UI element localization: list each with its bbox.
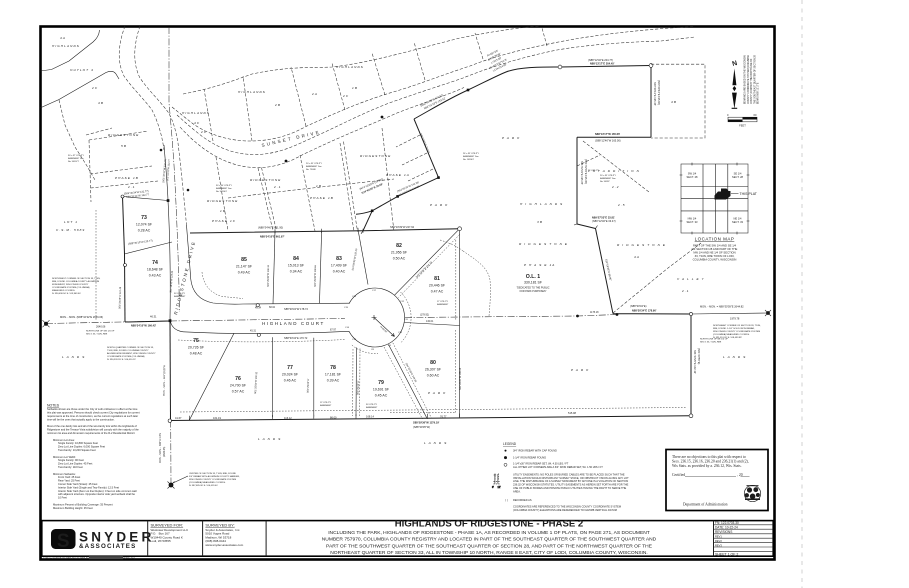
- svg-text:132.01: 132.01: [426, 320, 434, 323]
- svg-text:0.46 AC: 0.46 AC: [284, 379, 297, 383]
- svg-text:(178.92): (178.92): [420, 313, 429, 316]
- svg-text:20' x 35' UTILITY: 20' x 35' UTILITY: [306, 163, 323, 165]
- svg-text:EASEMENT: EASEMENT: [366, 406, 378, 409]
- svg-text:24,700 SF: 24,700 SF: [230, 384, 246, 388]
- svg-text:20' x 35' UTILITY: 20' x 35' UTILITY: [600, 175, 617, 177]
- svg-text:DATE: 10-22-24: DATE: 10-22-24: [715, 525, 738, 529]
- svg-text:87.97: 87.97: [330, 329, 337, 332]
- svg-text:PHASE 1B: PHASE 1B: [115, 176, 139, 180]
- svg-text:0.60 AC: 0.60 AC: [427, 374, 440, 378]
- svg-text:P H A S E 1A: P H A S E 1A: [524, 263, 555, 267]
- svg-text:INSTALLATION WOULD DISTURB ANY: INSTALLATION WOULD DISTURB ANY SURVEY ST…: [513, 476, 629, 480]
- svg-text:(N88°12'46"E 204.77): (N88°12'46"E 204.77): [588, 58, 613, 62]
- svg-text:EASEMENT Doc.: EASEMENT Doc.: [600, 177, 617, 180]
- svg-text:HIGHLANDS: HIGHLANDS: [238, 90, 266, 94]
- svg-text:SURVEYED BY:: SURVEYED BY:: [205, 522, 234, 527]
- svg-text:REV2: REV2: [715, 539, 722, 543]
- svg-text:CENTER OF SECTION 33, T10N, R8: CENTER OF SECTION 33, T10N, R8E, FOUND: [189, 473, 236, 475]
- svg-text:0.45 AC: 0.45 AC: [375, 394, 388, 398]
- svg-text:BEARINGS ARE BASED ON THE WISC: BEARINGS ARE BASED ON THE WISCONSIN: [744, 55, 747, 104]
- svg-text:330,181 SF: 330,181 SF: [524, 281, 542, 285]
- svg-text:2.1: 2.1: [681, 289, 690, 293]
- svg-text:REV3: REV3: [715, 543, 722, 547]
- svg-text:FOR PARK PURPOSES": FOR PARK PURPOSES": [520, 290, 547, 293]
- svg-text:SE 1/4: SE 1/4: [734, 171, 742, 175]
- svg-text:33, T10N, R8E TOWN OF LOD: 33, T10N, R8E TOWN OF LODI,: [695, 254, 735, 258]
- svg-text:116.12: 116.12: [284, 416, 292, 420]
- svg-text:(S88°12'46"W 165.00): (S88°12'46"W 165.00): [595, 139, 621, 143]
- svg-text:HIGHLAND COURT: HIGHLAND COURT: [262, 321, 325, 326]
- svg-text:Two-Family: 13,200 Square Feet: Two-Family: 13,200 Square Feet: [58, 448, 96, 452]
- svg-text:Most of the one-family lots an: Most of the one-family lots and all of t…: [47, 424, 137, 428]
- svg-text:(COLUMBIA COUNTY) ELEVATIONS A: (COLUMBIA COUNTY) ELEVATIONS ARE REFEREN…: [513, 508, 617, 512]
- svg-text:PHASE 1B: PHASE 1B: [310, 196, 334, 200]
- svg-text:45.31: 45.31: [250, 330, 257, 333]
- svg-text:SECT. 33: SECT. 33: [732, 220, 744, 224]
- svg-text:79: 79: [378, 380, 384, 386]
- svg-text:MON. - MON. - N00°11'13"E: MON. - MON. - N00°11'13"E: [159, 432, 162, 463]
- svg-text:NW 1/4 AND NE 1/4 OF SEC: NW 1/4 AND NE 1/4 OF SECTION: [693, 251, 735, 255]
- svg-text:COORDINATE SYSTEM (COLUMBIA): COORDINATE SYSTEM (COLUMBIA): [52, 286, 90, 289]
- svg-text:SECT. 33, T10N, R8E: SECT. 33, T10N, R8E: [700, 342, 722, 344]
- svg-text:C.S.M. 5889: C.S.M. 5889: [56, 228, 85, 232]
- svg-text:15,013 SF: 15,013 SF: [288, 264, 304, 268]
- svg-text:80: 80: [430, 360, 436, 366]
- svg-text:0.40 AC: 0.40 AC: [333, 270, 346, 274]
- svg-text:(N88°34'40"E 661.90): (N88°34'40"E 661.90): [258, 226, 283, 230]
- svg-text:www.snyder-associates.com: www.snyder-associates.com: [205, 543, 243, 547]
- svg-text:Minimum Lot Width:: Minimum Lot Width:: [53, 455, 76, 459]
- svg-text:H I G H L A N D S: H I G H L A N D S: [520, 202, 563, 206]
- svg-text:30' x 37' UTILITY: 30' x 37' UTILITY: [68, 155, 85, 157]
- svg-text:17' UTILITY: 17' UTILITY: [437, 301, 449, 303]
- svg-text:83: 83: [336, 256, 342, 262]
- svg-text:4B: 4B: [98, 101, 104, 105]
- svg-text:P A R K: P A R K: [428, 391, 446, 395]
- svg-text:L A N D S: L A N D S: [723, 355, 746, 359]
- svg-text:NUMBER 757970, COLUMBIA COUNTY: NUMBER 757970, COLUMBIA COUNTY REGISTRY …: [322, 537, 657, 543]
- svg-text:with adjacent structure. Oppos: with adjacent structure. Opposite interi…: [58, 492, 136, 496]
- svg-text:S01°29'26"W: S01°29'26"W: [306, 378, 310, 393]
- svg-text:0.47 AC: 0.47 AC: [431, 290, 444, 294]
- svg-text:Minimum Lot Area:: Minimum Lot Area:: [53, 438, 75, 442]
- svg-text:161.19: 161.19: [213, 416, 221, 420]
- svg-text:R I D G E S T O N E: R I D G E S T O N E: [519, 242, 568, 246]
- svg-text:Single Family: 10,800 Square F: Single Family: 10,800 Square Feet: [58, 441, 98, 445]
- svg-text:0.43 AC: 0.43 AC: [149, 274, 162, 278]
- svg-text:1B: 1B: [352, 86, 358, 90]
- svg-text:S88°39'36"W 1179.19': S88°39'36"W 1179.19': [413, 421, 440, 425]
- svg-text:EASEMENT: EASEMENT: [174, 295, 186, 298]
- svg-text:COORDINATES ARE REFERENCED TO: COORDINATES ARE REFERENCED TO THE WISCON…: [513, 505, 621, 509]
- svg-text:78: 78: [330, 365, 336, 371]
- svg-text:O.L. 1: O.L. 1: [526, 274, 541, 280]
- svg-text:No. 102067: No. 102067: [463, 159, 475, 161]
- svg-text:Rear Yard: 25 Feet: Rear Yard: 25 Feet: [58, 479, 80, 483]
- svg-text:2.5: 2.5: [617, 203, 626, 207]
- svg-text:1B: 1B: [220, 209, 226, 213]
- svg-text:HIGHLANDS: HIGHLANDS: [182, 111, 210, 115]
- svg-text:73: 73: [141, 215, 147, 221]
- svg-text:&ASSOCIATES: &ASSOCIATES: [79, 543, 136, 550]
- svg-text:SW 1/4: SW 1/4: [688, 171, 697, 175]
- svg-text:26' x 35' UTILITY: 26' x 35' UTILITY: [463, 153, 480, 155]
- svg-text:AREA.: AREA.: [513, 489, 521, 493]
- svg-text:this plat was approved. Person: this plat was approved. Persons should c…: [47, 411, 140, 415]
- svg-text:(COLUMBIA) MEASURED COORDS.: (COLUMBIA) MEASURED COORDS.: [189, 481, 226, 484]
- svg-text:Maximum Building Height: 45 Fe: Maximum Building Height: 45 Feet: [53, 506, 93, 510]
- svg-text:N: 390,326.55' E: 516,610.13': N: 390,326.55' E: 516,610.13': [107, 359, 136, 361]
- svg-text:( ): ( ): [505, 498, 508, 502]
- svg-text:74: 74: [152, 260, 158, 266]
- svg-text:NORTH LINE OF SW 1/4 OF: NORTH LINE OF SW 1/4 OF: [86, 331, 115, 333]
- svg-text:S01°02'33"E 195.05': S01°02'33"E 195.05': [580, 161, 584, 185]
- svg-text:COUNTY) IN WHICH THE NORTH LIN: COUNTY) IN WHICH THE NORTH LINE OF: [751, 58, 753, 104]
- svg-text:Setbacks shown are those under: Setbacks shown are those under the City …: [47, 407, 138, 411]
- svg-text:2640.06: 2640.06: [96, 325, 106, 329]
- svg-text:1979.78: 1979.78: [730, 317, 740, 321]
- svg-text:LOCATION MAP: LOCATION MAP: [695, 237, 735, 242]
- svg-text:2.1: 2.1: [127, 185, 136, 189]
- svg-text:Certified: Certified: [672, 473, 685, 477]
- svg-text:Ridgestone and the Terrace Vis: Ridgestone and the Terrace Vista subdivi…: [47, 428, 139, 432]
- svg-text:EASEMENT Doc.: EASEMENT Doc.: [68, 157, 85, 160]
- svg-text:SHEET 1 OF 2: SHEET 1 OF 2: [715, 552, 738, 556]
- svg-text:S: S: [57, 531, 70, 552]
- svg-text:EASEMENT Doc.: EASEMENT Doc.: [306, 165, 323, 168]
- svg-text:THE SOUTHEAST QUARTER OF SECTI: THE SOUTHEAST QUARTER OF SECTION 28: [753, 54, 756, 104]
- svg-text:PART OF THE SW 1/4 AND S: PART OF THE SW 1/4 AND SE 1/4: [693, 244, 737, 248]
- svg-text:NORTHEAST CORNER OF SECTION 33: NORTHEAST CORNER OF SECTION 33, T10N,: [713, 324, 761, 327]
- svg-text:HIGHLANDS: HIGHLANDS: [52, 44, 80, 48]
- svg-text:USE OF PUBLIC BODIES AND PRIVA: USE OF PUBLIC BODIES AND PRIVATE PUBLIC …: [513, 486, 627, 490]
- svg-text:MON. - MON. - S01°25'28"W: MON. - MON. - S01°25'28"W: [163, 364, 167, 396]
- svg-text:S88°30'34"W 178.72: S88°30'34"W 178.72: [284, 307, 308, 311]
- svg-text:(2640.05): (2640.05): [163, 447, 166, 457]
- svg-text:WISCONSIN COUNTY COORDINATE SY: WISCONSIN COUNTY COORDINATE SYSTEM: [713, 330, 760, 333]
- svg-text:4C: 4C: [194, 121, 200, 125]
- svg-text:0.50 AC: 0.50 AC: [393, 257, 406, 261]
- svg-text:Corner Side Yard (Street): 25: Corner Side Yard (Street): 25 Feet: [58, 482, 98, 486]
- svg-text:(S00°29'43"E 195.60): (S00°29'43"E 195.60): [657, 80, 661, 105]
- svg-text:5B: 5B: [121, 144, 127, 148]
- svg-text:R I D G E S T O N E: R I D G E S T O N E: [617, 243, 666, 247]
- svg-text:4A: 4A: [60, 36, 66, 40]
- svg-text:S01°29'26"W: S01°29'26"W: [356, 380, 360, 395]
- svg-text:N88°13'17"E 204.45': N88°13'17"E 204.45': [590, 62, 615, 66]
- svg-text:12': 12': [498, 486, 502, 489]
- svg-text:Lodi, WI 53555: Lodi, WI 53555: [151, 539, 172, 543]
- svg-text:(S01°20'55"E): (S01°20'55"E): [697, 348, 701, 364]
- svg-text:PHASE 1A: PHASE 1A: [386, 173, 410, 177]
- svg-text:Single Family: 90 Feet: Single Family: 90 Feet: [58, 458, 84, 462]
- svg-text:N88°34'10"W 166.42': N88°34'10"W 166.42': [131, 323, 157, 327]
- svg-text:P A R K: P A R K: [502, 136, 520, 140]
- svg-text:2B: 2B: [274, 103, 281, 107]
- svg-text:1-1/4"x30" IRON REBAR SET, Wt: 1-1/4"x30" IRON REBAR SET, Wt. 4.30 LBS …: [513, 462, 569, 466]
- svg-text:PART OF THE SOUTHWEST QUARTER: PART OF THE SOUTHWEST QUARTER OF THE SOU…: [326, 543, 653, 549]
- svg-text:minimum lot area and dimension: minimum lot area and dimension requireme…: [47, 431, 135, 435]
- svg-text:86.00: 86.00: [330, 415, 337, 419]
- svg-text:2C: 2C: [200, 130, 207, 134]
- svg-text:17,181 SF: 17,181 SF: [325, 373, 341, 377]
- svg-text:HIGHLANDS OF RIDGESTONE - PHAS: HIGHLANDS OF RIDGESTONE - PHASE 2: [395, 519, 584, 530]
- svg-text:30' x 30' UTILITY: 30' x 30' UTILITY: [216, 185, 233, 187]
- svg-text:168.14: 168.14: [366, 415, 374, 419]
- svg-text:76.77: 76.77: [440, 415, 447, 419]
- svg-text:R8E, FOUND COLUMBIA COUNTY ALU: R8E, FOUND COLUMBIA COUNTY ALUMINUM: [52, 280, 99, 283]
- svg-text:Front Yard: 25 Feet: Front Yard: 25 Feet: [58, 475, 81, 479]
- svg-text:Two-Family: 110 Feet: Two-Family: 110 Feet: [58, 465, 83, 469]
- svg-text:EASEMENT: EASEMENT: [437, 303, 449, 306]
- svg-text:NE 1/4: NE 1/4: [734, 216, 742, 220]
- svg-text:No. 902067: No. 902067: [216, 191, 228, 193]
- svg-text:77: 77: [287, 365, 293, 371]
- svg-text:MONUMENT, WISCONSIN COUNTY: MONUMENT, WISCONSIN COUNTY: [52, 284, 89, 286]
- svg-text:T10N, R8E, FOUND COLUMBIA COUN: T10N, R8E, FOUND COLUMBIA COUNTY: [107, 349, 149, 352]
- svg-text:3/4" IRON REBAR WITH CAP FOUND: 3/4" IRON REBAR WITH CAP FOUND: [513, 449, 557, 453]
- svg-text:REVISIONS: REVISIONS: [715, 530, 732, 534]
- svg-text:Zero Lot Line Duplex: 6,000 Sq: Zero Lot Line Duplex: 6,000 Square Feet: [58, 445, 105, 449]
- svg-text:RECORDED AS: RECORDED AS: [513, 498, 532, 502]
- svg-text:19,691 SF: 19,691 SF: [373, 388, 389, 392]
- svg-text:V A L L E Y: V A L L E Y: [677, 277, 705, 281]
- svg-text:SECT. 33: SECT. 33: [687, 220, 699, 224]
- svg-text:UTILITY EASEMENTS: NO POLES OR: UTILITY EASEMENTS: NO POLES OR BURIED CA…: [513, 472, 625, 476]
- svg-text:(N89°12'46"E 33.47): (N89°12'46"E 33.47): [592, 219, 616, 223]
- svg-text:RIDGESTONE: RIDGESTONE: [108, 133, 139, 137]
- svg-text:L A N D S: L A N D S: [258, 437, 281, 441]
- svg-text:LINE. THE DISTURBANCE OF A SUR: LINE. THE DISTURBANCE OF A SURVEY MONUME…: [513, 479, 628, 483]
- svg-text:3B: 3B: [537, 220, 543, 224]
- svg-text:WISCONSIN COUNTY COORDINATE SY: WISCONSIN COUNTY COORDINATE SYSTEM: [189, 478, 236, 481]
- svg-text:FN: 122.0703.30: FN: 122.0703.30: [715, 521, 739, 525]
- svg-text:20,024 SF: 20,024 SF: [282, 373, 298, 377]
- svg-text:Maximum Percent of Building Co: Maximum Percent of Building Coverage: 35…: [53, 502, 113, 506]
- svg-text:P A R K: P A R K: [571, 368, 589, 372]
- svg-text:(N88°30'04"E): (N88°30'04"E): [630, 304, 647, 308]
- svg-text:3/4" REBAR WITH ALUMINUM COUNT: 3/4" REBAR WITH ALUMINUM COUNTY MARKER,: [189, 475, 240, 478]
- svg-text:81: 81: [434, 276, 440, 282]
- svg-text:requirements at the time of co: requirements at the time of construction…: [47, 414, 138, 418]
- svg-text:(COLUMBIA) MEASURED COORDS.: (COLUMBIA) MEASURED COORDS.: [713, 333, 750, 336]
- svg-text:NORTHWEST CORNER OF SECTION 33: NORTHWEST CORNER OF SECTION 33, T10N,: [52, 278, 101, 280]
- svg-text:ALUMINUM MONUMENT, WISCONSIN C: ALUMINUM MONUMENT, WISCONSIN COUNTY: [107, 352, 156, 355]
- svg-text:20,726 SF: 20,726 SF: [188, 346, 204, 350]
- svg-text:2.1: 2.1: [273, 185, 282, 189]
- svg-text:time will be the ones that act: time will be the ones that actually appl…: [47, 417, 115, 421]
- svg-text:P A R K: P A R K: [430, 203, 448, 207]
- svg-text:Interior Side Yard (Single and: Interior Side Yard (Single and Two-Famil…: [58, 485, 119, 489]
- svg-text:10 Feet: 10 Feet: [58, 496, 67, 500]
- svg-text:OUTLOT 4: OUTLOT 4: [70, 68, 94, 72]
- svg-text:L A N D S: L A N D S: [62, 355, 85, 359]
- svg-text:RIDGESTONE: RIDGESTONE: [360, 154, 391, 158]
- svg-text:R8E, FOUND 1-1/4" SOLID IRON R: R8E, FOUND 1-1/4" SOLID IRON REBAR,: [713, 327, 755, 330]
- svg-text:No. 90287: No. 90287: [600, 181, 610, 183]
- svg-text:20,446 SF: 20,446 SF: [429, 284, 445, 288]
- svg-text:RIDGESTONE: RIDGESTONE: [207, 199, 238, 203]
- svg-text:46.31: 46.31: [150, 315, 157, 319]
- svg-text:RIDGESTONE: RIDGESTONE: [250, 178, 281, 182]
- svg-text:2.2: 2.2: [611, 185, 620, 189]
- svg-text:EASEMENT Doc.: EASEMENT Doc.: [463, 155, 480, 158]
- svg-text:30' UTILITY: 30' UTILITY: [174, 293, 186, 295]
- svg-text:21,147 SF: 21,147 SF: [236, 265, 252, 269]
- svg-text:4B: 4B: [671, 100, 677, 104]
- svg-text:NORTH QUARTER CORNER OF SECTIO: NORTH QUARTER CORNER OF SECTION 33,: [107, 346, 154, 349]
- svg-text:75: 75: [193, 338, 199, 344]
- svg-text:L A N D S: L A N D S: [424, 441, 447, 445]
- svg-text:(S88°39'05"W): (S88°39'05"W): [413, 425, 430, 429]
- svg-text:85: 85: [241, 257, 247, 263]
- svg-text:26,307 SF: 26,307 SF: [425, 368, 441, 372]
- svg-text:NW 1/4: NW 1/4: [688, 216, 697, 220]
- svg-text:1-1/4" IRON REBAR FOUND: 1-1/4" IRON REBAR FOUND: [513, 456, 546, 460]
- svg-text:Minimum Setbacks:: Minimum Setbacks:: [53, 472, 76, 476]
- svg-text:NORTH LINE OF NE 1/4 OF: NORTH LINE OF NE 1/4 OF: [700, 339, 728, 341]
- svg-text:REV1: REV1: [715, 535, 722, 539]
- svg-text:0.57 AC: 0.57 AC: [232, 390, 245, 394]
- svg-text:EASEMENT: EASEMENT: [320, 404, 332, 407]
- svg-text:No. 902077: No. 902077: [68, 161, 80, 163]
- svg-text:N88°13'17"W 165.66': N88°13'17"W 165.66': [595, 132, 621, 136]
- svg-text:N88°30'34"E 178.90': N88°30'34"E 178.90': [632, 309, 657, 313]
- svg-text:2C: 2C: [91, 86, 98, 90]
- svg-text:515.98: 515.98: [568, 411, 576, 415]
- svg-text:82: 82: [396, 243, 402, 249]
- svg-text:18,648 SF: 18,648 SF: [147, 268, 163, 272]
- svg-text:INCLUDING THE PARK, HIGHLANDS: INCLUDING THE PARK, HIGHLANDS OF RIDGEST…: [328, 530, 650, 536]
- svg-text:0.49 AC: 0.49 AC: [238, 271, 251, 275]
- svg-text:FEET: FEET: [739, 124, 746, 128]
- svg-text:S01°29'26"W 100.11: S01°29'26"W 100.11: [267, 264, 270, 287]
- svg-text:COLUMBIA COUNTY, WISCONSIN: COLUMBIA COUNTY, WISCONSIN: [693, 258, 737, 262]
- svg-text:N89°27'53"E 33.81': N89°27'53"E 33.81': [592, 216, 615, 220]
- svg-text:There are no objections to thi: There are no objections to this plat wit…: [672, 455, 746, 459]
- svg-text:LOT 1: LOT 1: [64, 220, 78, 224]
- svg-text:N89°10'39"W 227.62: N89°10'39"W 227.62: [390, 225, 415, 229]
- svg-text:4A: 4A: [634, 255, 640, 259]
- svg-text:SECT. 28: SECT. 28: [732, 175, 744, 179]
- svg-text:PHASE 1C: PHASE 1C: [212, 219, 236, 223]
- svg-text:S01°29'26"W 100.64: S01°29'26"W 100.64: [314, 264, 317, 287]
- svg-text:76: 76: [235, 376, 241, 382]
- svg-text:SECT. 28: SECT. 28: [687, 175, 699, 179]
- svg-text:LEGEND: LEGEND: [503, 442, 517, 446]
- svg-text:12' UTILITY: 12' UTILITY: [320, 402, 332, 404]
- svg-text:NORTHEAST QUARTER OF SECTION 3: NORTHEAST QUARTER OF SECTION 33, ALL IN …: [330, 550, 648, 556]
- svg-text:BEARS N88°13'17"E: BEARS N88°13'17"E: [757, 82, 760, 104]
- svg-text:S00°29'13"E 195.35': S00°29'13"E 195.35': [653, 82, 657, 106]
- svg-text:NOTES: NOTES: [47, 404, 60, 408]
- svg-text:ALL OTHER LOT CORNERS ARE A 3/: ALL OTHER LOT CORNERS ARE A 3/4" IRON RE…: [513, 465, 603, 469]
- svg-text:N88°34'10"E 661.97': N88°34'10"E 661.97': [260, 235, 285, 239]
- svg-text:MON. - MON. = N88°30'59"E 264: MON. - MON. = N88°30'59"E 2644.82: [700, 305, 744, 309]
- svg-text:35' UTILITY: 35' UTILITY: [588, 170, 600, 172]
- svg-text:2C: 2C: [342, 94, 349, 98]
- svg-text:12,074 SF: 12,074 SF: [136, 223, 152, 227]
- svg-text:MEASURED COORDS.: MEASURED COORDS.: [52, 289, 76, 292]
- svg-text:1175.18: 1175.18: [590, 311, 599, 314]
- svg-text:THIS PLAT: THIS PLAT: [740, 192, 758, 196]
- svg-text:84: 84: [293, 256, 299, 262]
- svg-text:48.34: 48.34: [255, 307, 262, 310]
- svg-text:HIGHLANDS: HIGHLANDS: [336, 65, 364, 69]
- svg-text:17,409 SF: 17,409 SF: [331, 264, 347, 268]
- svg-text:MON. - MON. (N88°10'32"E 2646: MON. - MON. (N88°10'32"E 2646.06): [60, 315, 103, 319]
- svg-text:No. 79038: No. 79038: [306, 169, 316, 171]
- svg-text:236.32 OF WISCONSIN STATUTES.: 236.32 OF WISCONSIN STATUTES. UTILITY EA…: [513, 483, 629, 487]
- svg-text:1B: 1B: [316, 184, 322, 188]
- svg-text:N88°30'34"E 176.72: N88°30'34"E 176.72: [284, 336, 308, 340]
- svg-text:S01°20'24"W 185.15: S01°20'24"W 185.15: [459, 367, 462, 390]
- svg-text:SECT. 33, T10N, R8E: SECT. 33, T10N, R8E: [86, 334, 108, 336]
- svg-text:COUNTY COORDINATE SYSTEM (COLU: COUNTY COORDINATE SYSTEM (COLUMBIA: [747, 55, 750, 104]
- svg-text:SURVEYED FOR:: SURVEYED FOR:: [151, 522, 184, 527]
- svg-text:S01°20'25"E 102.19': S01°20'25"E 102.19': [693, 350, 697, 374]
- svg-text:30' UTILITY: 30' UTILITY: [366, 404, 378, 406]
- svg-text:OF SECTION 28 AND PART OF: OF SECTION 28 AND PART OF THE: [692, 247, 738, 251]
- svg-text:0.48 AC: 0.48 AC: [190, 352, 203, 356]
- svg-text:COORDINATE SYSTEM (COLUMBIA): COORDINATE SYSTEM (COLUMBIA): [107, 355, 145, 358]
- svg-text:0.34 AC: 0.34 AC: [290, 270, 303, 274]
- svg-text:N: 387,685.30' E: 516,619.40': N: 387,685.30' E: 516,619.40': [189, 485, 218, 487]
- svg-text:Department of Administration: Department of Administration: [683, 503, 728, 507]
- svg-text:2A: 2A: [311, 92, 318, 96]
- svg-text:21,956 SF: 21,956 SF: [391, 251, 407, 255]
- svg-text:68.02: 68.02: [269, 306, 276, 309]
- svg-text:41.67: 41.67: [175, 416, 182, 420]
- svg-text:Zero Lot Line Duplex: 45 Feet: Zero Lot Line Duplex: 45 Feet: [58, 462, 93, 466]
- svg-text:EASEMENT Doc.: EASEMENT Doc.: [216, 187, 233, 190]
- svg-text:0.39 AC: 0.39 AC: [327, 379, 340, 383]
- svg-text:0.28 AC: 0.28 AC: [138, 229, 151, 233]
- svg-text:Interior Side Yard (Zero Lot l: Interior Side Yard (Zero Lot line Duplex…: [58, 489, 137, 493]
- svg-text:N: 390,496.50' E: 513,963.60': N: 390,496.50' E: 513,963.60': [52, 293, 81, 295]
